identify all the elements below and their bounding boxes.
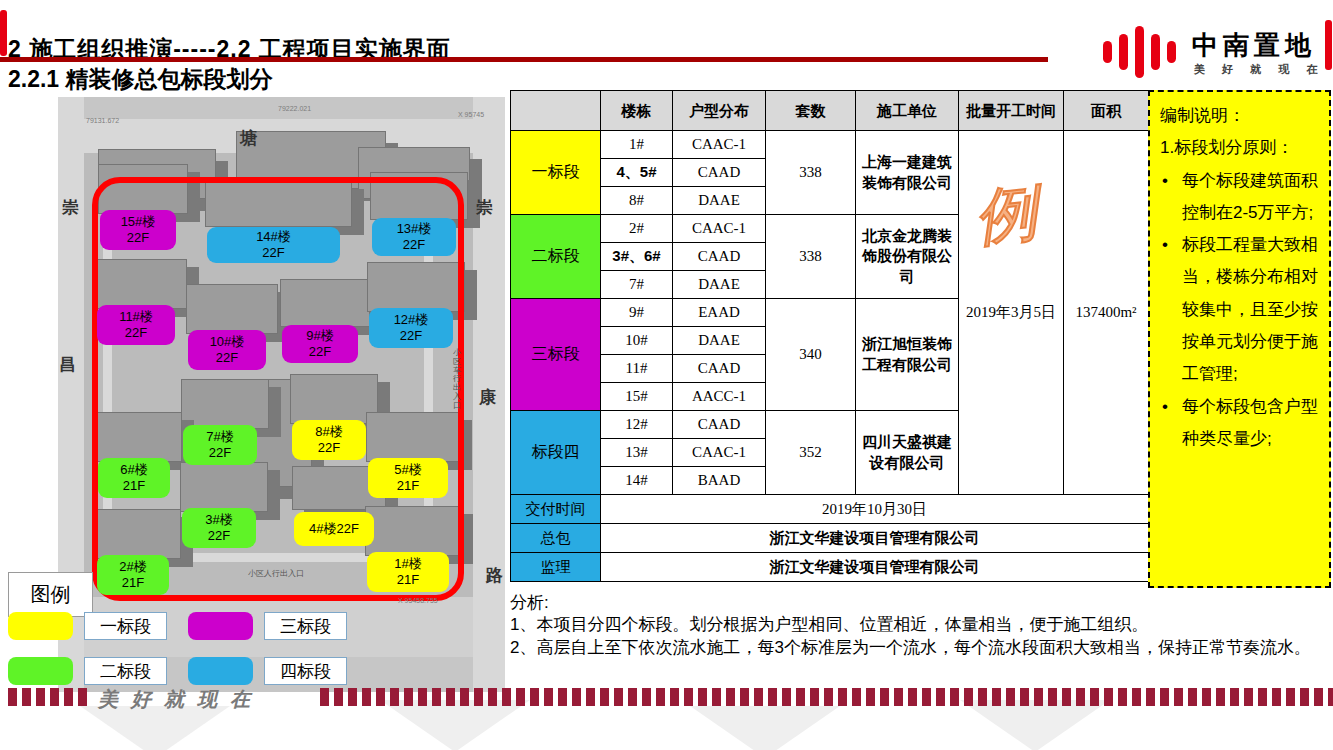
building-label: 11#楼22F (97, 305, 175, 345)
legend-label: 二标段 (84, 657, 167, 685)
legend-label: 一标段 (84, 612, 167, 640)
unit-type-cell: CAAD (673, 355, 766, 383)
chevron-decoration (960, 700, 1110, 750)
units-count-cell: 338 (766, 215, 856, 299)
table-row: 一标段1#CAAC-1338上海一建建筑装饰有限公司例2019年3月5日1374… (511, 131, 1149, 159)
footer-label-cell: 交付时间 (511, 495, 601, 524)
unit-type-cell: DAAE (673, 271, 766, 299)
legend-label: 三标段 (264, 612, 347, 640)
notes-bullet: 每个标段建筑面积控制在2-5万平方; (1160, 165, 1323, 230)
table-footer-row: 监理浙江文华建设项目管理有限公司 (511, 553, 1149, 582)
legend-swatch (188, 657, 253, 685)
building-label: 10#楼22F (188, 330, 266, 370)
footer-value-cell: 浙江文华建设项目管理有限公司 (601, 524, 1149, 553)
road-name: 昌 (59, 353, 76, 376)
unit-type-cell: CAAC-1 (673, 215, 766, 243)
building-label: 15#楼22F (100, 210, 176, 250)
building-cell: 13# (601, 439, 673, 467)
analysis-line: 1、本项目分四个标段。划分根据为户型相同、位置相近，体量相当，便于施工组织。 (510, 614, 1332, 636)
footer-value-cell: 浙江文华建设项目管理有限公司 (601, 553, 1149, 582)
analysis-title: 分析: (510, 592, 1332, 614)
legend-swatch (8, 657, 73, 685)
survey-coordinate: 79131.672 (86, 117, 119, 124)
analysis-line: 2、高层自上至下依次流水施工，每3个标准层为一个流水，每个流水段面积大致相当，保… (510, 637, 1332, 659)
segment-label-cell: 三标段 (511, 299, 601, 411)
segment-label-cell: 二标段 (511, 215, 601, 299)
unit-type-cell: DAAE (673, 187, 766, 215)
column-header (511, 91, 601, 131)
building-label: 6#楼21F (98, 458, 170, 498)
building-cell: 2# (601, 215, 673, 243)
page-subtitle: 2.2.1 精装修总包标段划分 (8, 64, 273, 95)
column-header: 面积 (1064, 91, 1149, 131)
unit-type-cell: CAAD (673, 243, 766, 271)
building-label: 4#楼22F (294, 512, 374, 546)
vehicle-entrance-label: 小区车行出入口 (453, 349, 467, 411)
unit-type-cell: AACC-1 (673, 383, 766, 411)
segments-table: 楼栋户型分布套数施工单位批量开工时间面积 一标段1#CAAC-1338上海一建建… (510, 90, 1149, 582)
unit-type-cell: CAAC-1 (673, 131, 766, 159)
segment-label-cell: 标段四 (511, 411, 601, 495)
footer-dash-strip-left (8, 688, 90, 706)
pedestrian-entrance-label: 小区人行出入口 (248, 568, 304, 579)
column-header: 批量开工时间 (959, 91, 1064, 131)
unit-type-cell: DAAE (673, 327, 766, 355)
segment-label-cell: 一标段 (511, 131, 601, 215)
left-accent-bar (0, 10, 7, 56)
footer-label-cell: 总包 (511, 524, 601, 553)
road-name: 崇 (62, 196, 79, 219)
footer-dash-strip-right (320, 688, 1333, 706)
unit-type-cell: CAAD (673, 411, 766, 439)
contractor-cell: 北京金龙腾装饰股份有限公司 (856, 215, 959, 299)
notes-title: 编制说明： (1160, 100, 1323, 132)
units-count-cell: 352 (766, 411, 856, 495)
notes-bullets: 每个标段建筑面积控制在2-5万平方; 标段工程量大致相当，楼栋分布相对较集中，且… (1160, 165, 1323, 456)
units-count-cell: 340 (766, 299, 856, 411)
contractor-cell: 上海一建建筑装饰有限公司 (856, 131, 959, 215)
units-count-cell: 338 (766, 131, 856, 215)
survey-coordinate: 79222.021 (278, 105, 311, 112)
unit-type-cell: EAAD (673, 299, 766, 327)
building-cell: 15# (601, 383, 673, 411)
building-cell: 8# (601, 187, 673, 215)
building-label: 1#楼21F (367, 552, 449, 592)
legend-swatch (8, 612, 73, 640)
segments-table-wrap: 楼栋户型分布套数施工单位批量开工时间面积 一标段1#CAAC-1338上海一建建… (510, 90, 1149, 582)
legend-label: 四标段 (264, 657, 347, 685)
unit-type-cell: CAAD (673, 159, 766, 187)
road-name: 塘 (240, 127, 257, 150)
notes-bullet: 标段工程量大致相当，楼栋分布相对较集中，且至少按按单元划分便于施工管理; (1160, 229, 1323, 390)
building-label: 8#楼22F (292, 420, 366, 460)
legend-swatch (188, 612, 253, 640)
building-cell: 11# (601, 355, 673, 383)
chevron-decoration (380, 700, 530, 750)
contractor-cell: 四川天盛祺建设有限公司 (856, 411, 959, 495)
building-cell: 1# (601, 131, 673, 159)
example-watermark: 例 (971, 170, 1041, 260)
soundbars-icon (1096, 26, 1182, 78)
column-header: 施工单位 (856, 91, 959, 131)
slide: 2 施工组织推演-----2.2 工程项目实施界面 2.2.1 精装修总包标段划… (0, 0, 1333, 750)
title-underline (0, 57, 1048, 62)
footer-script-slogan: 美好就现在 (98, 686, 263, 713)
unit-type-cell: BAAD (673, 467, 766, 495)
column-header: 户型分布 (673, 91, 766, 131)
contractor-cell: 浙江旭恒装饰工程有限公司 (856, 299, 959, 411)
survey-coordinate: X 95745 (458, 111, 484, 118)
road-name: 康 (479, 386, 496, 409)
building-label: 12#楼22F (369, 308, 453, 348)
notes-bullet: 每个标段包含户型种类尽量少; (1160, 391, 1323, 456)
start-time-cell: 例2019年3月5日 (959, 131, 1064, 495)
analysis-block: 分析: 1、本项目分四个标段。划分根据为户型相同、位置相近，体量相当，便于施工组… (510, 592, 1332, 659)
survey-coordinate: X 95458.755 (398, 597, 438, 604)
building-label: 5#楼21F (368, 458, 448, 498)
logo-tagline: 美 好 就 现 在 (1194, 62, 1324, 77)
area-cell: 137400m² (1064, 131, 1149, 495)
building-label: 13#楼22F (372, 218, 456, 256)
table-footer-row: 交付时间2019年10月30日 (511, 495, 1149, 524)
building-label: 3#楼22F (182, 508, 256, 548)
building-cell: 4、5# (601, 159, 673, 187)
building-label: 7#楼22F (183, 425, 257, 465)
site-plan-map: 15#楼22F14#楼22F13#楼22F11#楼22F10#楼22F9#楼22… (58, 97, 505, 692)
column-header: 套数 (766, 91, 856, 131)
legend-title-box: 图例 (8, 572, 93, 617)
footer-label-cell: 监理 (511, 553, 601, 582)
building-label: 9#楼22F (282, 325, 358, 363)
table-footer-row: 总包浙江文华建设项目管理有限公司 (511, 524, 1149, 553)
building-label: 2#楼21F (97, 555, 169, 595)
logo-name: 中南置地 (1192, 28, 1316, 63)
road-name: 路 (486, 564, 503, 587)
building-cell: 14# (601, 467, 673, 495)
building-label: 14#楼22F (207, 227, 340, 263)
column-header: 楼栋 (601, 91, 673, 131)
unit-type-cell: CAAC-1 (673, 439, 766, 467)
building-cell: 3#、6# (601, 243, 673, 271)
table-header-row: 楼栋户型分布套数施工单位批量开工时间面积 (511, 91, 1149, 131)
company-logo: 中南置地 美 好 就 现 在 (1096, 24, 1316, 80)
right-accent-bar (1325, 20, 1332, 70)
building-cell: 10# (601, 327, 673, 355)
chevron-decoration (690, 706, 840, 750)
building-cell: 7# (601, 271, 673, 299)
road-name: 崇 (476, 196, 493, 219)
notes-principle: 1.标段划分原则： (1160, 132, 1323, 164)
notes-panel: 编制说明： 1.标段划分原则： 每个标段建筑面积控制在2-5万平方; 标段工程量… (1148, 90, 1331, 588)
building-cell: 9# (601, 299, 673, 327)
building-cell: 12# (601, 411, 673, 439)
footer-value-cell: 2019年10月30日 (601, 495, 1149, 524)
